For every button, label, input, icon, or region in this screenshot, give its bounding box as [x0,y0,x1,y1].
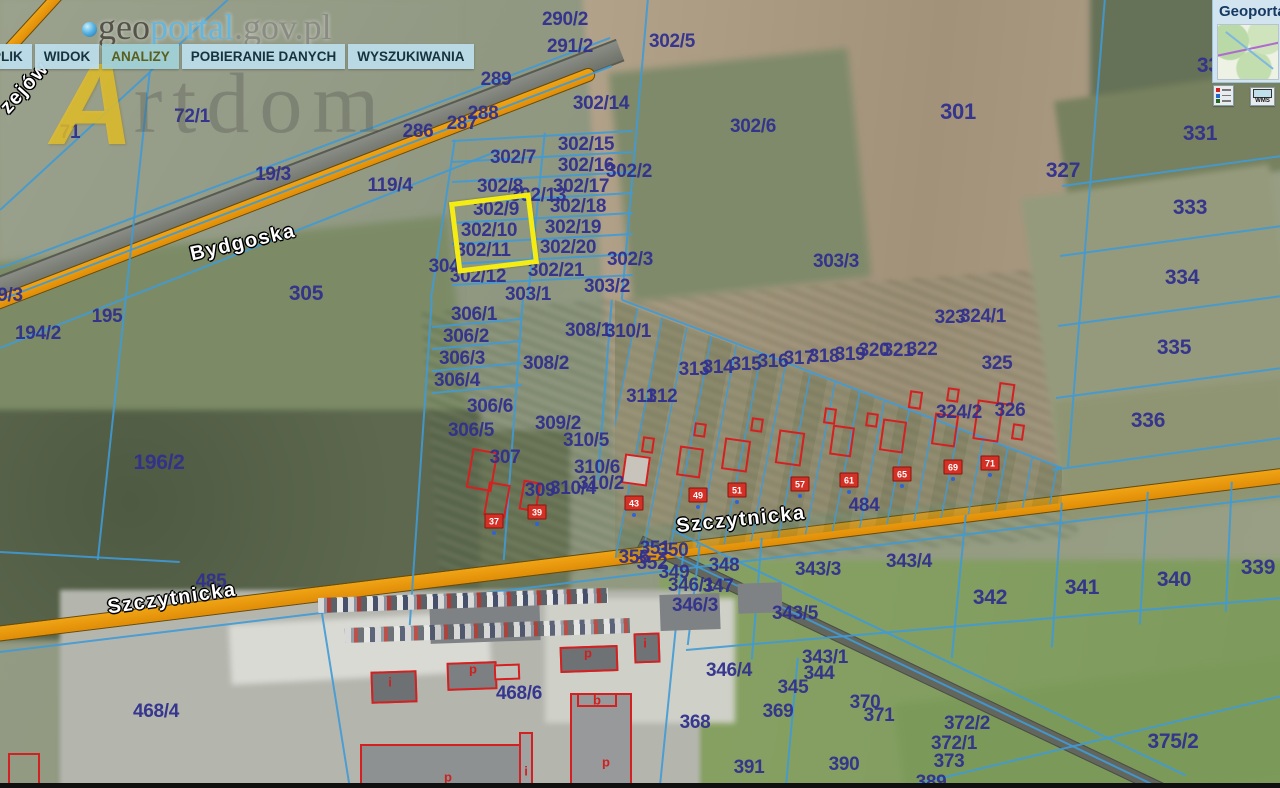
parcel-label: 484 [849,495,880,517]
parcel-label: 286 [403,121,434,143]
parcel-label: 302/14 [573,93,629,115]
parcel-label: 302/19 [545,217,601,239]
parcel-label: 325 [982,353,1013,375]
address-number-badge: 71 [981,456,1000,471]
address-point [798,494,802,498]
parcel-label: 333 [1173,196,1207,220]
building-function-letter: p [469,662,477,677]
overview-minimap[interactable] [1217,24,1279,80]
menu-item-pobieranie-danych[interactable]: POBIERANIE DANYCH [182,44,346,69]
parcel-label: 290/2 [542,9,588,31]
parcel-label: 314 [703,357,734,379]
parcel-label: 322 [907,339,938,361]
parcel-label: 306/2 [443,326,489,348]
parcel-label: 291/2 [547,36,593,58]
parcel-label: 345 [778,677,809,699]
parcel-label: 468/6 [496,683,542,705]
address-point [632,513,636,517]
bottom-edge-bar [0,783,1280,788]
parcel-label: 324/2 [936,402,982,424]
parcel-label: 305 [289,282,323,306]
address-number-badge: 51 [728,483,747,498]
parcel-label: 368 [680,712,711,734]
parcel-label: 391 [734,757,765,779]
parcel-label: 306/3 [439,348,485,370]
side-panel[interactable]: Geoporta [1212,0,1280,83]
parcel-label: 195 [92,306,123,328]
building-outline [676,445,704,478]
address-point [988,473,992,477]
legend-row [1216,94,1231,98]
parcel-label: 375/2 [1147,730,1198,754]
parcel-label: 346/4 [706,660,752,682]
parcel-label: 302/6 [730,116,776,138]
building-outline [829,425,855,458]
parcel-label: 342 [973,586,1007,610]
parcel-label: 373 [934,751,965,773]
building-outline [750,417,764,433]
parcel-label: 302/15 [558,134,614,156]
address-number-badge: 57 [791,477,810,492]
parcel-label: 341 [1065,576,1099,600]
building-outline [8,753,40,787]
parcel-label: 301 [940,99,976,125]
parcel-label: 336 [1131,409,1165,433]
logo-part-portal: portal [150,7,234,47]
building-outline [721,437,751,472]
menu-item-analizy[interactable]: ANALIZY [102,44,179,69]
address-point [696,505,700,509]
building-outline [946,387,960,403]
parcel-label: 390 [829,754,860,776]
parcel-label: 343/3 [795,559,841,581]
building-outline [823,407,837,425]
map-canvas[interactable]: 290/2291/2302/5289302/142882872867172/11… [0,0,1280,788]
address-number-badge: 39 [528,505,547,520]
parcel-label: 303/2 [584,276,630,298]
address-point [951,477,955,481]
building-outline [775,429,805,466]
building-outline [1011,423,1025,441]
parcel-label: 343/5 [772,603,818,625]
parcel-label: 302/3 [607,249,653,271]
building-outline [370,670,417,704]
parcel-label: 306/6 [467,396,513,418]
parcel-label: 194/2 [15,323,61,345]
parcel-label: 334 [1165,266,1199,290]
parcel-label: 324/1 [960,306,1006,328]
parcel-label: 19/3 [255,164,291,186]
building-outline [693,422,707,438]
address-point [492,531,496,535]
parcel-label: 312 [647,386,678,408]
address-point [735,500,739,504]
panel-title: Geoporta [1213,0,1280,22]
building-function-letter: b [593,693,601,708]
building-function-letter: i [524,764,528,779]
building-outline [641,436,655,454]
parcel-label: 306/1 [451,304,497,326]
address-number-badge: 43 [625,496,644,511]
building-function-letter: p [584,646,592,661]
menu-item-plik[interactable]: PLIK [0,44,32,69]
parcel-label: 310/1 [605,321,651,343]
parcel-label: 306/4 [434,370,480,392]
parcel-label: 302/5 [649,31,695,53]
parcel-label: 9/3 [0,285,23,307]
parcel-label: 302/18 [550,196,606,218]
parcel-label: 372/2 [944,713,990,735]
parcel-label: 307 [490,447,521,469]
parcel-label: 310/4 [550,478,596,500]
logo-part-gov: .gov.pl [234,7,332,47]
parcel-label: 327 [1046,159,1080,183]
building-outline [519,732,533,788]
geoportal-logo: geoportal.gov.pl [78,6,332,48]
parcel-label: 303/3 [813,251,859,273]
parcel-label: 371 [864,705,895,727]
parcel-label: 306/5 [448,420,494,442]
address-number-badge: 49 [689,488,708,503]
parcel-label: 303/1 [505,284,551,306]
address-number-badge: 37 [485,514,504,529]
building-function-letter: i [643,636,647,651]
legend-row [1216,88,1231,92]
address-point [535,522,539,526]
parcel-label: 119/4 [368,175,413,197]
building-function-letter: p [602,755,610,770]
parcel-label: 302/20 [540,237,596,259]
wms-label: WMS [1255,98,1270,104]
building-outline [621,453,651,486]
address-number-badge: 69 [944,460,963,475]
building-outline [879,418,907,453]
address-point [847,490,851,494]
building-outline [633,633,660,664]
parcel-label: 331 [1183,122,1217,146]
parcel-label: 72/1 [174,106,210,128]
parcel-label: 340 [1157,568,1191,592]
parcel-label: 343/4 [886,551,932,573]
building-function-letter: i [388,675,392,690]
parcel-label: 196/2 [133,451,184,475]
building-outline [865,412,879,428]
parcel-label: 302/2 [606,161,652,183]
parcel-label: 339 [1241,556,1275,580]
highlighted-parcel-302-10[interactable] [449,192,539,273]
address-number-badge: 61 [840,473,859,488]
parcel-label: 468/4 [133,701,179,723]
parcel-label: 302/7 [490,147,536,169]
parcel-label: 346/3 [672,595,718,617]
parcel-label: 348 [709,555,740,577]
wms-button[interactable]: WMS [1250,87,1275,106]
parcel-label: 310/5 [563,430,609,452]
menu-item-wyszukiwania[interactable]: WYSZUKIWANIA [348,44,473,69]
parcel-label: 308/2 [523,353,569,375]
menu-item-widok[interactable]: WIDOK [35,44,100,69]
address-point [900,484,904,488]
parcel-label: 335 [1157,336,1191,360]
legend-row [1216,99,1231,103]
building-outline [494,664,521,681]
address-number-badge: 65 [893,467,912,482]
parcel-label: 289 [481,69,512,91]
wms-monitor-icon [1253,89,1272,98]
logo-part-geo: geo [98,7,150,47]
building-outline [907,390,922,410]
parcel-label: 369 [763,701,794,723]
parcel-label: 326 [995,400,1026,422]
globe-icon [82,22,97,37]
legend-button[interactable] [1213,85,1234,106]
parcel-label: 71 [60,122,81,144]
menu-bar: PLIKWIDOKANALIZYPOBIERANIE DANYCHWYSZUKI… [0,44,474,69]
parcel-label: 287 [447,113,478,135]
